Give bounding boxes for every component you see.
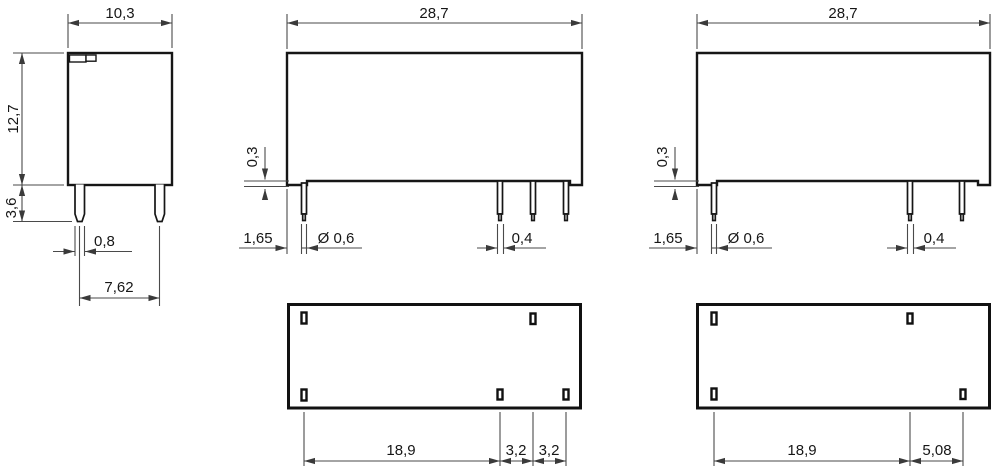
pin-shaft [960, 181, 965, 214]
bottom-view-b: 18,9 5,08 [698, 305, 990, 467]
front-view-b: 28,7 0,3 1,65 Ø 0,6 0,4 [649, 5, 990, 254]
dim-label-pitch-main: 18,9 [386, 442, 415, 459]
pin [908, 181, 913, 221]
pin [302, 183, 307, 221]
pin [712, 183, 717, 221]
dim-label-body-width: 28,7 [419, 5, 448, 22]
pin-slot [531, 314, 536, 325]
pin-shaft [302, 183, 307, 214]
pin-tip [303, 214, 306, 221]
pin [564, 181, 569, 221]
dim-label-pin-thickness: 0,4 [924, 230, 945, 247]
pin-slot [302, 390, 307, 401]
pin-shaft [712, 183, 717, 214]
pin-tip [499, 214, 502, 221]
dim-label-standoff: 0,3 [244, 147, 261, 168]
dim-label-pin-length: 3,6 [3, 198, 20, 219]
pin-slot [712, 389, 717, 400]
relay-body-side [68, 53, 172, 185]
relay-body-front [287, 53, 582, 185]
pin-tip [909, 214, 912, 221]
pin [75, 185, 85, 222]
dim-label-pin-thickness: 0,4 [512, 230, 533, 247]
pin [498, 181, 503, 221]
pin-slot [961, 390, 966, 400]
pin-slot [302, 313, 307, 324]
pin-shaft [531, 181, 536, 214]
front-view-a: 28,7 0,3 1,65 Ø 0,6 0,4 [239, 5, 582, 254]
relay-body-front [697, 53, 990, 185]
relay-footprint [289, 305, 581, 409]
dim-label-side-width: 10,3 [105, 5, 134, 22]
pin-slot [712, 313, 717, 325]
relay-footprint [698, 305, 990, 409]
dim-label-pin-width: 0,8 [94, 233, 115, 250]
pin [155, 185, 165, 222]
pin-slot [908, 314, 913, 324]
dim-label-pin-pitch: 7,62 [104, 279, 133, 296]
pin-slot [498, 390, 503, 400]
side-view: 10,3 12,7 3,6 0,8 7,62 [3, 5, 172, 306]
pin-shaft [908, 181, 913, 214]
pin [531, 181, 536, 221]
case-vent-slot [70, 55, 87, 62]
pin-tip [961, 214, 964, 221]
dim-label-pin-inset: 1,65 [243, 230, 272, 247]
pin [960, 181, 965, 221]
dim-label-pitch-2: 5,08 [922, 442, 951, 459]
pin-tip [532, 214, 535, 221]
pin-tip [713, 214, 716, 221]
case-vent-slot [86, 55, 96, 61]
dim-label-pin-diameter: Ø 0,6 [728, 230, 765, 247]
dim-label-side-height: 12,7 [5, 104, 22, 133]
dim-label-pin-inset: 1,65 [653, 230, 682, 247]
dim-label-standoff: 0,3 [654, 147, 671, 168]
technical-drawing-page: 10,3 12,7 3,6 0,8 7,62 [0, 0, 1000, 474]
bottom-view-a: 18,9 3,2 3,2 [289, 305, 581, 467]
dim-label-pitch-3: 3,2 [539, 442, 560, 459]
dim-label-pitch-main: 18,9 [787, 442, 816, 459]
pin-shaft [498, 181, 503, 214]
dim-label-pitch-2: 3,2 [506, 442, 527, 459]
dim-label-body-width: 28,7 [828, 5, 857, 22]
dim-label-pin-diameter: Ø 0,6 [318, 230, 355, 247]
relay-dimension-drawing: 10,3 12,7 3,6 0,8 7,62 [0, 0, 1000, 474]
pin-tip [565, 214, 568, 221]
pin-slot [564, 390, 569, 400]
pin-shaft [564, 181, 569, 214]
